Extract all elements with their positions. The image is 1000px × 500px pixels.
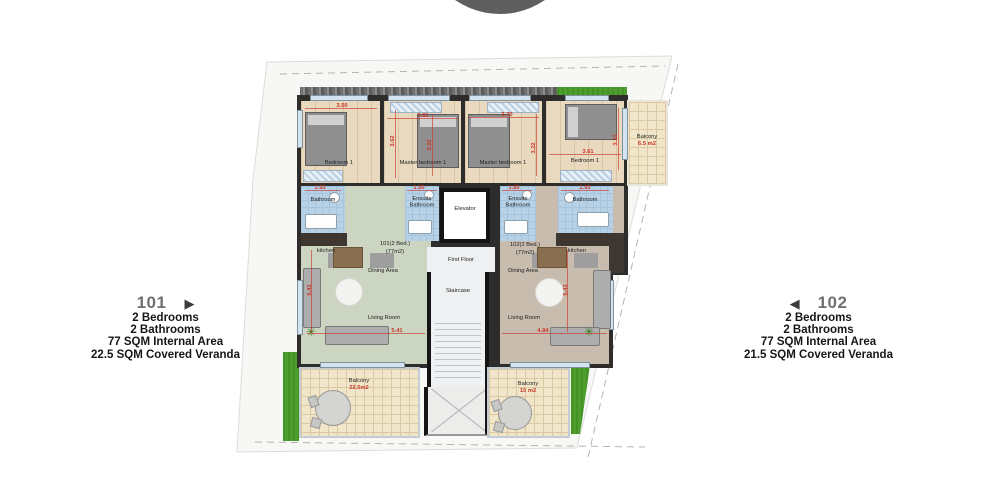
label-ensuite-101: Ensuite Bathroom [408,196,437,209]
grass-strip-left [283,352,299,441]
dim-bedroom1-101-w: 3.50 [336,102,347,108]
unit-102-internal-area: 77 SQM Internal Area [706,336,931,348]
label-master-102: Master bedroom 1 [480,159,527,165]
page: 101 ▶ 2 Bedrooms 2 Bathrooms 77 SQM Inte… [0,0,1000,500]
unit-102-number: 102 [818,293,848,313]
label-kitchen-102: kitchen [568,247,586,253]
dim-master-102-h: 3.22 [530,142,536,153]
sofa-side-101 [303,268,321,328]
dim-bedroom1-102-w: 3.61 [582,148,593,154]
room-shaft-lower [424,387,489,436]
label-staircase: Staircase [446,287,470,293]
window-bedroom1-101 [310,95,368,101]
unit-101-arrow-icon[interactable]: ▶ [184,297,194,310]
dim-living-101-w: 5.41 [391,327,402,333]
dim-ensuite-102: 1.85 [508,184,519,190]
dim-bathroom-102: 1.93 [579,184,590,190]
label-living-101: Living Room [368,314,400,320]
unit-102-bedrooms: 2 Bedrooms [706,312,931,324]
window-balcony-door-102 [622,108,628,160]
sofa-side-102 [593,270,611,329]
label-apt-102: 102(2 Bed.) [510,241,540,247]
kitchen-counter-101 [301,233,347,246]
label-balcony-101-area: 22.5m2 [349,384,369,390]
dim-master-101-h: 3.22 [426,139,432,150]
label-bedroom1-101: Bedroom 1 [325,159,353,165]
label-first-floor: First Floor [448,256,474,262]
sofa-101 [325,326,389,345]
bathtub-ensuite-101 [408,220,432,234]
dim-living-101-h: 5.43 [306,284,312,295]
dim-living-102-h: 5.43 [562,284,568,295]
label-balcony-102: Balcony [518,380,538,386]
unit-102-veranda-area: 21.5 SQM Covered Veranda [706,349,931,361]
closet-master-101 [390,102,442,113]
label-balcony-102-area: 15 m2 [520,387,536,393]
label-living-102: Living Room [508,314,540,320]
label-bathroom-102: Bathroom [573,196,598,202]
window-master-101 [388,95,450,101]
label-balcony-101: Balcony [349,377,369,383]
dim-ensuite-101: 1.50 [413,184,424,190]
sliding-door-balcony-102 [510,362,590,368]
label-balcony-top: Balcony [637,133,657,139]
label-balcony-top-area: 6.5 m2 [638,140,656,146]
label-dining-101: Dining Area [368,267,398,273]
dim-bedroom1-102-h: 3.22 [612,134,618,145]
label-master-101: Master bedroom 1 [400,159,447,165]
window-bedroom1-102 [565,95,609,101]
bathtub-ensuite-102 [504,220,528,234]
unit-101-number: 101 [137,293,167,313]
bed-bedroom1-102 [565,104,617,140]
unit-102-bathrooms: 2 Bathrooms [706,324,931,336]
window-master-102 [469,95,531,101]
rug-102 [535,278,564,307]
dimline [307,333,425,334]
dim-bathroom-101: 1.93 [314,184,325,190]
dining-table-102 [537,247,567,268]
stair-steps [435,318,481,379]
sliding-door-balcony-101 [320,362,405,368]
site-plan: ✳ ✳ Bedroom 1 Master bedroom 1 Master be… [225,50,690,470]
unit-102-panel[interactable]: ◀ 102 2 Bedrooms 2 Bathrooms 77 SQM Inte… [706,294,931,361]
dining-table-101 [333,247,363,268]
closet-bedroom1-101 [303,170,343,182]
kitchen-counter-102 [556,233,624,246]
closet-bedroom1-102 [560,170,612,182]
closet-master-102 [487,102,539,113]
label-apt-102-area: (77m2) [516,249,534,255]
dimline [502,333,607,334]
rug-101 [335,278,363,306]
bathtub-102 [577,212,609,227]
dim-living-102-w: 4.84 [537,327,548,333]
label-ensuite-102: Ensuite Bathroom [504,196,533,209]
label-kitchen-101: kitchen [317,247,335,253]
bathtub-101 [305,214,337,229]
unit-102-arrow-icon[interactable]: ◀ [790,297,800,310]
plant-icon-102: ✳ [584,326,594,338]
logo-circle [421,0,579,14]
room-elevator [440,188,490,243]
label-dining-102: Dining Area [508,267,538,273]
kitchen-side-counter-102 [609,246,624,273]
label-bedroom1-102: Bedroom 1 [571,157,599,163]
dim-bedroom1-101-h: 3.62 [389,135,395,146]
dim-master-101-w: 3.81 [417,112,428,118]
window-left-wall-upper [297,110,303,148]
label-elevator: Elevator [454,205,475,211]
dim-master-102-w: 3.70 [501,111,512,117]
label-apt-101-area: (77m2) [386,248,404,254]
label-bathroom-101: Bathroom [311,196,336,202]
unit-102-title-row: ◀ 102 [706,294,931,312]
label-apt-101: 101(2 Bed.) [380,240,410,246]
